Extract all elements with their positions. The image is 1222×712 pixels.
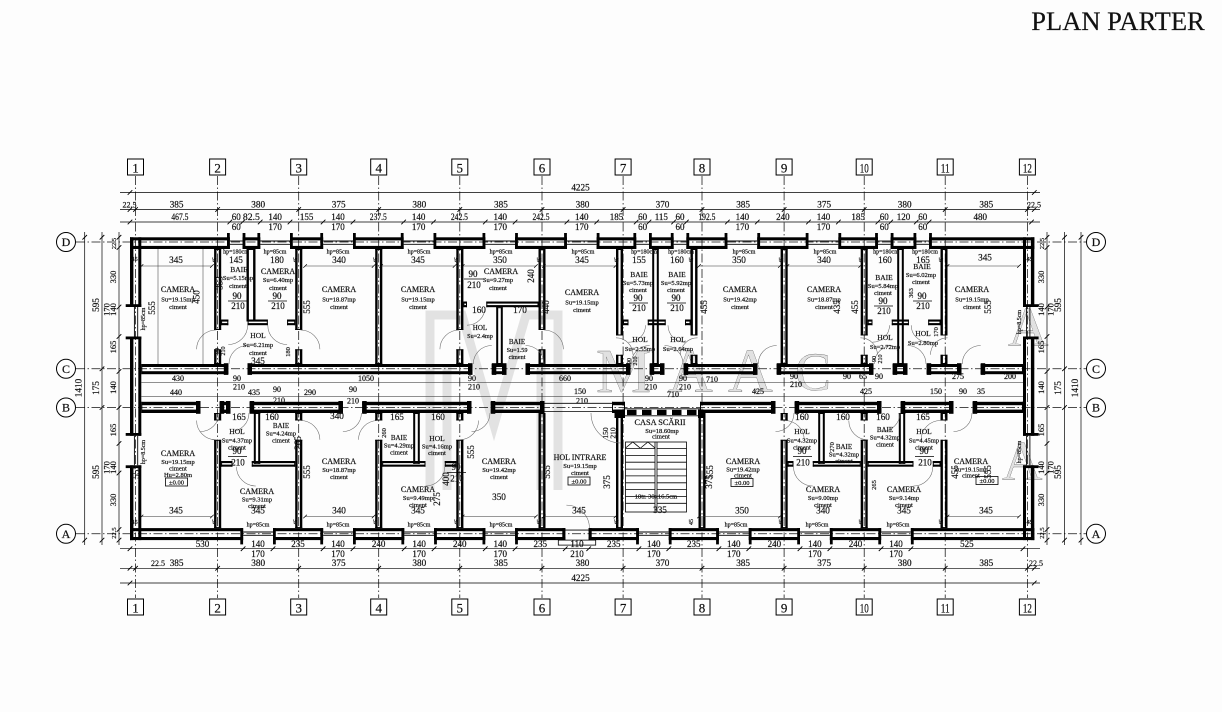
svg-text:Su=1.59: Su=1.59 — [507, 347, 528, 354]
svg-text:385: 385 — [170, 200, 184, 210]
svg-text:265: 265 — [871, 480, 878, 490]
svg-text:BAIE: BAIE — [273, 422, 289, 430]
svg-text:240: 240 — [453, 539, 467, 549]
svg-text:60: 60 — [918, 222, 928, 232]
svg-text:345: 345 — [572, 506, 586, 516]
svg-text:385: 385 — [979, 558, 993, 568]
svg-text:Su=9.27mp: Su=9.27mp — [483, 277, 513, 284]
svg-text:380: 380 — [576, 558, 590, 568]
svg-text:210: 210 — [796, 458, 810, 468]
svg-text:380: 380 — [412, 558, 426, 568]
svg-text:60: 60 — [638, 212, 648, 222]
svg-text:6: 6 — [539, 160, 546, 175]
svg-text:ciment: ciment — [169, 304, 187, 311]
svg-text:140: 140 — [889, 539, 903, 549]
svg-text:Su=2.55mp: Su=2.55mp — [625, 346, 655, 353]
svg-text:82.5: 82.5 — [243, 212, 261, 222]
svg-text:C: C — [62, 362, 70, 376]
svg-text:170: 170 — [933, 327, 940, 337]
svg-text:CAMERA: CAMERA — [807, 285, 841, 294]
svg-text:140: 140 — [251, 539, 265, 549]
svg-text:HOL: HOL — [670, 335, 686, 344]
svg-text:140: 140 — [331, 212, 345, 222]
svg-text:HOL: HOL — [250, 331, 266, 340]
svg-text:HOL: HOL — [794, 427, 810, 436]
svg-text:385: 385 — [736, 558, 750, 568]
svg-text:Su=19.15mp: Su=19.15mp — [401, 297, 434, 304]
svg-text:BAIE: BAIE — [875, 273, 893, 282]
svg-text:180: 180 — [285, 347, 292, 357]
svg-text:140: 140 — [736, 212, 750, 222]
svg-text:210: 210 — [231, 458, 245, 468]
svg-text:140: 140 — [727, 539, 741, 549]
svg-text:345: 345 — [575, 255, 589, 265]
svg-text:385: 385 — [494, 558, 508, 568]
svg-text:3: 3 — [295, 160, 302, 175]
svg-text:±0.00: ±0.00 — [572, 479, 587, 486]
svg-text:ciment: ciment — [490, 474, 508, 481]
svg-text:Su=18.87mp: Su=18.87mp — [322, 467, 355, 474]
svg-text:Su=19.15mp: Su=19.15mp — [563, 463, 596, 470]
svg-text:60: 60 — [880, 212, 890, 222]
svg-text:210: 210 — [468, 383, 480, 392]
svg-text:CAMERA: CAMERA — [161, 285, 195, 294]
svg-text:HOL: HOL — [877, 333, 893, 342]
svg-text:7: 7 — [620, 600, 627, 615]
svg-text:C: C — [1092, 362, 1100, 376]
svg-text:260: 260 — [381, 428, 388, 438]
svg-text:4: 4 — [375, 160, 382, 175]
svg-text:210: 210 — [679, 383, 691, 392]
svg-text:hp=85cm: hp=85cm — [725, 523, 748, 529]
svg-text:22.5: 22.5 — [111, 527, 118, 538]
svg-text:22.5: 22.5 — [151, 559, 165, 568]
svg-text:165: 165 — [108, 424, 118, 437]
svg-text:±0.00: ±0.00 — [735, 480, 750, 487]
svg-text:175: 175 — [1053, 381, 1063, 395]
svg-text:45: 45 — [131, 519, 138, 526]
svg-text:B: B — [1092, 401, 1100, 415]
svg-text:45: 45 — [374, 257, 380, 263]
svg-text:BAIE: BAIE — [630, 270, 648, 279]
svg-text:455: 455 — [699, 300, 709, 314]
svg-text:12: 12 — [1023, 160, 1032, 175]
svg-text:1410: 1410 — [74, 378, 84, 397]
svg-text:60: 60 — [676, 212, 686, 222]
svg-text:CAMERA: CAMERA — [401, 285, 435, 294]
svg-text:210: 210 — [790, 380, 802, 389]
svg-text:140: 140 — [412, 539, 426, 549]
svg-text:±0.00: ±0.00 — [169, 480, 184, 487]
svg-text:380: 380 — [898, 558, 912, 568]
svg-text:Su=19.42mp: Su=19.42mp — [482, 467, 515, 474]
svg-text:ciment: ciment — [963, 304, 981, 311]
svg-text:150: 150 — [930, 387, 942, 396]
svg-text:330: 330 — [108, 271, 118, 284]
svg-text:Su=5.15mp: Su=5.15mp — [223, 275, 253, 282]
svg-text:BAIE: BAIE — [509, 338, 525, 346]
svg-text:140: 140 — [817, 212, 831, 222]
svg-text:345: 345 — [169, 255, 183, 265]
svg-text:340: 340 — [817, 255, 831, 265]
svg-text:210: 210 — [877, 306, 891, 316]
svg-text:ciment: ciment — [876, 442, 894, 449]
svg-text:210: 210 — [347, 397, 359, 406]
svg-text:9: 9 — [781, 600, 788, 615]
svg-text:380: 380 — [576, 200, 590, 210]
svg-text:385: 385 — [736, 200, 750, 210]
svg-text:9: 9 — [781, 160, 788, 175]
svg-text:90: 90 — [875, 372, 883, 381]
svg-text:140: 140 — [575, 212, 589, 222]
svg-text:170: 170 — [102, 461, 112, 474]
svg-text:555: 555 — [302, 300, 312, 314]
svg-text:Su=2.72mp: Su=2.72mp — [870, 344, 900, 351]
svg-text:385: 385 — [494, 200, 508, 210]
svg-text:380: 380 — [412, 200, 426, 210]
svg-text:45: 45 — [455, 519, 461, 525]
svg-text:330: 330 — [1036, 271, 1046, 284]
svg-text:ciment: ciment — [409, 304, 427, 311]
svg-text:Su=18.87mp: Su=18.87mp — [322, 297, 355, 304]
svg-text:ciment: ciment — [912, 279, 930, 286]
svg-text:HOL: HOL — [915, 329, 931, 338]
svg-text:265: 265 — [293, 436, 303, 450]
svg-text:ciment: ciment — [731, 304, 749, 311]
svg-text:480: 480 — [974, 212, 988, 222]
svg-text:385: 385 — [170, 558, 184, 568]
svg-text:140: 140 — [412, 212, 426, 222]
svg-text:Su=4.45mp: Su=4.45mp — [909, 438, 939, 445]
svg-text:Su=9.14mp: Su=9.14mp — [889, 495, 919, 502]
svg-text:45: 45 — [614, 519, 620, 525]
svg-text:hp=8.5cm: hp=8.5cm — [141, 440, 147, 465]
svg-text:270: 270 — [829, 442, 836, 452]
svg-text:530: 530 — [196, 539, 210, 549]
svg-text:345: 345 — [251, 356, 265, 366]
svg-text:210: 210 — [576, 397, 588, 406]
svg-text:90: 90 — [634, 293, 644, 303]
svg-text:10: 10 — [860, 160, 869, 175]
svg-text:210: 210 — [450, 474, 464, 484]
svg-text:160: 160 — [472, 305, 486, 315]
svg-text:CAMERA: CAMERA — [322, 285, 356, 294]
svg-text:375: 375 — [817, 200, 831, 210]
svg-text:65: 65 — [859, 372, 867, 381]
svg-text:Su=5.84mp: Su=5.84mp — [868, 283, 898, 290]
svg-text:170: 170 — [736, 222, 750, 232]
svg-text:160: 160 — [431, 412, 445, 422]
svg-text:235: 235 — [291, 539, 305, 549]
svg-text:275: 275 — [952, 372, 964, 381]
svg-text:170: 170 — [493, 222, 507, 232]
svg-text:Su=9.49mp: Su=9.49mp — [403, 495, 433, 502]
svg-text:45: 45 — [939, 257, 945, 263]
svg-text:455: 455 — [850, 300, 860, 314]
svg-text:B: B — [62, 401, 70, 415]
svg-text:Su=2.64mp: Su=2.64mp — [663, 346, 693, 353]
svg-text:350: 350 — [732, 255, 746, 265]
svg-text:555: 555 — [302, 465, 312, 479]
svg-text:1: 1 — [132, 600, 139, 615]
svg-text:Su=5.92mp: Su=5.92mp — [661, 280, 691, 287]
svg-text:140: 140 — [331, 539, 345, 549]
svg-text:660: 660 — [559, 374, 571, 383]
svg-text:45: 45 — [212, 257, 218, 263]
svg-text:170: 170 — [331, 222, 345, 232]
svg-text:CAMERA: CAMERA — [806, 485, 840, 494]
svg-text:3: 3 — [295, 600, 302, 615]
svg-text:45: 45 — [939, 519, 945, 525]
svg-text:D: D — [1092, 235, 1101, 249]
svg-text:210: 210 — [633, 357, 639, 366]
svg-text:145: 145 — [229, 255, 243, 265]
svg-text:HOL: HOL — [473, 324, 487, 332]
svg-text:HOL: HOL — [632, 335, 648, 344]
svg-text:HOL: HOL — [916, 427, 932, 436]
svg-text:1050: 1050 — [358, 374, 374, 383]
svg-text:Su=9.00mp: Su=9.00mp — [808, 495, 838, 502]
svg-text:210: 210 — [271, 301, 285, 311]
svg-text:210: 210 — [645, 383, 657, 392]
svg-text:8: 8 — [699, 160, 706, 175]
svg-text:210: 210 — [918, 458, 932, 468]
svg-text:CAMERA: CAMERA — [161, 449, 195, 458]
svg-text:hp=85cm: hp=85cm — [247, 523, 270, 529]
svg-text:180: 180 — [270, 255, 284, 265]
svg-text:35: 35 — [977, 387, 985, 396]
svg-text:90: 90 — [233, 291, 243, 301]
svg-text:ciment: ciment — [509, 354, 526, 361]
svg-text:450: 450 — [192, 290, 202, 304]
svg-text:140: 140 — [1036, 381, 1046, 394]
svg-text:8: 8 — [699, 600, 706, 615]
svg-text:hp=85cm: hp=85cm — [806, 523, 829, 529]
svg-text:CAMERA: CAMERA — [322, 457, 356, 466]
svg-text:Su=4.32mp: Su=4.32mp — [870, 435, 900, 442]
svg-text:185: 185 — [851, 212, 865, 222]
svg-text:555: 555 — [542, 465, 552, 479]
svg-text:90: 90 — [798, 446, 808, 456]
svg-text:525: 525 — [960, 539, 974, 549]
svg-text:CAMERA: CAMERA — [887, 485, 921, 494]
svg-text:170: 170 — [268, 222, 282, 232]
svg-text:11: 11 — [941, 160, 950, 175]
svg-text:45: 45 — [374, 519, 380, 525]
svg-text:90: 90 — [918, 291, 928, 301]
svg-text:4: 4 — [375, 600, 382, 615]
svg-text:345: 345 — [411, 506, 425, 516]
svg-text:363: 363 — [908, 288, 915, 298]
svg-text:710: 710 — [667, 390, 679, 399]
svg-text:7: 7 — [620, 160, 627, 175]
svg-text:235: 235 — [687, 539, 701, 549]
svg-text:60: 60 — [918, 212, 928, 222]
svg-text:BAIE: BAIE — [877, 426, 893, 434]
svg-text:Su=2.80mp: Su=2.80mp — [908, 340, 938, 347]
svg-text:45: 45 — [779, 257, 785, 263]
svg-text:BAIE: BAIE — [230, 265, 248, 274]
svg-text:CAMERA: CAMERA — [484, 267, 518, 276]
svg-text:165: 165 — [108, 341, 118, 354]
svg-text:210: 210 — [231, 301, 245, 311]
svg-text:555: 555 — [466, 445, 476, 459]
svg-text:240: 240 — [849, 539, 863, 549]
svg-text:192.5: 192.5 — [698, 212, 715, 222]
svg-text:435: 435 — [832, 300, 842, 314]
svg-text:CAMERA: CAMERA — [482, 457, 516, 466]
svg-text:45: 45 — [1027, 256, 1034, 263]
svg-text:237.5: 237.5 — [370, 212, 387, 222]
svg-text:Su=4.37mp: Su=4.37mp — [222, 438, 252, 445]
svg-text:160: 160 — [836, 412, 850, 422]
svg-text:Su=19.15mp: Su=19.15mp — [565, 300, 598, 307]
svg-text:ciment: ciment — [815, 304, 833, 311]
svg-text:335: 335 — [653, 505, 667, 515]
svg-text:290: 290 — [304, 388, 316, 397]
svg-text:345: 345 — [411, 255, 425, 265]
svg-text:210: 210 — [670, 303, 684, 313]
svg-text:ciment: ciment — [229, 283, 247, 290]
svg-text:ciment: ciment — [272, 438, 290, 445]
svg-text:375: 375 — [817, 558, 831, 568]
svg-text:350: 350 — [492, 492, 506, 502]
svg-text:CAMERA: CAMERA — [565, 288, 599, 297]
svg-text:345: 345 — [251, 506, 265, 516]
svg-text:242.5: 242.5 — [451, 212, 468, 222]
svg-text:90: 90 — [843, 372, 851, 381]
svg-text:45: 45 — [859, 257, 865, 263]
svg-text:45: 45 — [294, 519, 300, 525]
svg-text:5: 5 — [457, 160, 464, 175]
svg-text:Su=6.02mp: Su=6.02mp — [906, 272, 936, 279]
svg-text:370: 370 — [656, 558, 670, 568]
svg-text:ciment: ciment — [962, 473, 980, 480]
svg-text:BAIE: BAIE — [391, 434, 407, 442]
svg-text:210: 210 — [609, 427, 618, 439]
svg-text:555: 555 — [983, 300, 993, 314]
svg-text:370: 370 — [656, 200, 670, 210]
svg-text:4225: 4225 — [571, 183, 590, 193]
svg-text:90: 90 — [469, 269, 479, 279]
svg-text:6: 6 — [539, 600, 546, 615]
svg-text:60: 60 — [880, 222, 890, 232]
svg-text:90: 90 — [959, 387, 967, 396]
svg-text:353: 353 — [215, 276, 225, 290]
svg-text:Su=19.42mp: Su=19.42mp — [723, 297, 756, 304]
svg-text:345: 345 — [897, 506, 911, 516]
svg-text:210: 210 — [916, 301, 930, 311]
svg-text:45: 45 — [1027, 519, 1034, 526]
svg-text:240: 240 — [768, 539, 782, 549]
svg-text:240: 240 — [372, 539, 386, 549]
svg-text:185: 185 — [610, 212, 624, 222]
svg-text:200: 200 — [1004, 372, 1016, 381]
svg-text:440: 440 — [541, 300, 551, 314]
svg-text:210: 210 — [467, 280, 481, 290]
svg-text:90: 90 — [672, 293, 682, 303]
svg-text:CAMERA: CAMERA — [261, 267, 295, 276]
svg-text:BAIE: BAIE — [668, 270, 686, 279]
svg-text:595: 595 — [91, 465, 101, 479]
svg-text:hp=85cm: hp=85cm — [887, 523, 910, 529]
svg-text:CAMERA: CAMERA — [954, 457, 988, 466]
svg-text:22.5: 22.5 — [123, 201, 137, 210]
svg-text:165: 165 — [232, 412, 246, 422]
svg-text:Su=2.4mp: Su=2.4mp — [467, 333, 493, 340]
svg-text:170: 170 — [412, 222, 426, 232]
svg-text:22.5: 22.5 — [1039, 527, 1046, 538]
svg-text:45: 45 — [689, 519, 695, 525]
svg-text:160: 160 — [670, 255, 684, 265]
svg-text:140: 140 — [108, 381, 118, 394]
svg-text:375: 375 — [602, 475, 612, 489]
svg-text:ciment: ciment — [571, 470, 589, 477]
svg-text:165: 165 — [1036, 341, 1046, 354]
svg-text:555: 555 — [147, 301, 157, 315]
svg-text:CAMERA: CAMERA — [240, 487, 274, 496]
svg-text:170: 170 — [513, 305, 527, 315]
svg-text:467.5: 467.5 — [171, 212, 188, 222]
svg-text:345: 345 — [169, 506, 183, 516]
svg-text:hp=85cm: hp=85cm — [327, 523, 350, 529]
svg-text:160: 160 — [795, 412, 809, 422]
svg-text:BAIE: BAIE — [913, 262, 931, 271]
svg-text:240: 240 — [526, 269, 536, 283]
svg-text:140: 140 — [808, 539, 822, 549]
svg-text:45: 45 — [779, 519, 785, 525]
svg-text:Su=19.15mp: Su=19.15mp — [161, 297, 194, 304]
svg-text:340: 340 — [332, 506, 346, 516]
svg-text:BAIE: BAIE — [836, 443, 852, 451]
svg-text:375: 375 — [332, 200, 346, 210]
svg-text:440: 440 — [170, 388, 182, 397]
svg-text:5: 5 — [457, 600, 464, 615]
svg-text:90: 90 — [273, 385, 281, 394]
svg-text:165: 165 — [916, 412, 930, 422]
svg-text:375: 375 — [332, 558, 346, 568]
svg-text:170: 170 — [575, 222, 589, 232]
svg-text:60: 60 — [232, 212, 242, 222]
svg-text:155: 155 — [300, 212, 314, 222]
svg-text:ciment: ciment — [652, 434, 670, 441]
svg-text:HOL INTRARE: HOL INTRARE — [554, 453, 607, 462]
svg-text:400: 400 — [441, 472, 451, 486]
svg-text:330: 330 — [1036, 494, 1046, 507]
svg-text:CASA SCĂRII: CASA SCĂRII — [635, 418, 686, 427]
svg-text:170: 170 — [817, 222, 831, 232]
svg-text:90: 90 — [452, 462, 462, 472]
svg-text:425: 425 — [752, 387, 764, 396]
svg-text:45: 45 — [131, 256, 138, 263]
svg-text:45: 45 — [689, 257, 695, 263]
svg-text:345: 345 — [979, 506, 993, 516]
svg-text:90: 90 — [879, 296, 889, 306]
svg-text:60: 60 — [638, 222, 648, 232]
svg-text:240: 240 — [776, 212, 790, 222]
svg-text:345: 345 — [978, 253, 992, 263]
svg-text:210: 210 — [273, 396, 285, 405]
svg-text:ciment: ciment — [489, 285, 507, 292]
svg-text:12: 12 — [1023, 600, 1032, 615]
svg-text:140: 140 — [268, 212, 282, 222]
svg-text:90: 90 — [233, 446, 243, 456]
svg-text:45: 45 — [614, 257, 620, 263]
svg-text:hp=85cm: hp=85cm — [408, 523, 431, 529]
svg-text:380: 380 — [898, 200, 912, 210]
svg-text:275: 275 — [432, 492, 442, 506]
svg-text:595: 595 — [1053, 465, 1063, 479]
